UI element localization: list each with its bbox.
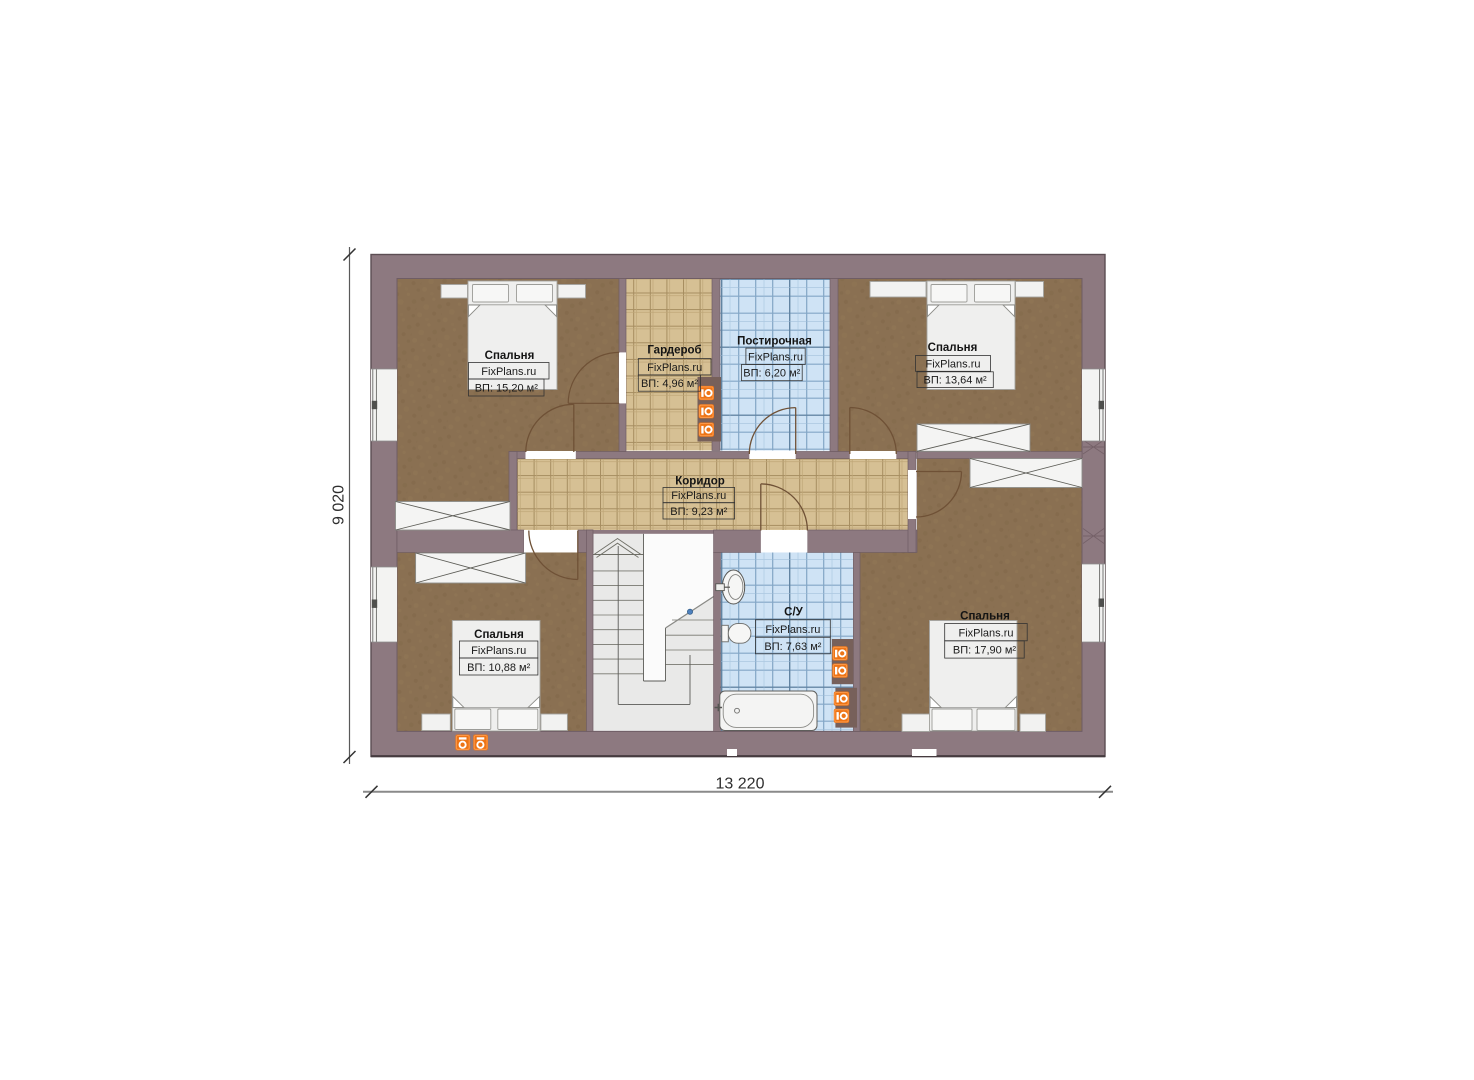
svg-text:С/У: С/У bbox=[784, 607, 804, 619]
svg-text:ВП: 9,23 м²: ВП: 9,23 м² bbox=[670, 506, 727, 518]
svg-text:Коридор: Коридор bbox=[675, 475, 725, 487]
svg-text:9 020: 9 020 bbox=[331, 485, 348, 525]
svg-text:Гардероб: Гардероб bbox=[647, 344, 701, 356]
svg-text:FixPlans.ru: FixPlans.ru bbox=[958, 627, 1013, 639]
svg-text:ВП: 7,63 м²: ВП: 7,63 м² bbox=[764, 641, 821, 653]
svg-text:Постирочная: Постирочная bbox=[737, 335, 812, 347]
svg-text:ВП: 6,20 м²: ВП: 6,20 м² bbox=[743, 368, 800, 380]
svg-text:FixPlans.ru: FixPlans.ru bbox=[471, 645, 526, 657]
svg-text:FixPlans.ru: FixPlans.ru bbox=[748, 351, 803, 363]
svg-text:ВП: 13,64 м²: ВП: 13,64 м² bbox=[924, 375, 988, 387]
svg-text:ВП: 4,96 м²: ВП: 4,96 м² bbox=[641, 378, 698, 390]
svg-text:Спальня: Спальня bbox=[474, 629, 524, 641]
svg-text:FixPlans.ru: FixPlans.ru bbox=[647, 362, 702, 374]
svg-text:Спальня: Спальня bbox=[960, 610, 1010, 622]
svg-text:FixPlans.ru: FixPlans.ru bbox=[765, 624, 820, 636]
svg-text:FixPlans.ru: FixPlans.ru bbox=[671, 490, 726, 502]
svg-text:ВП: 15,20 м²: ВП: 15,20 м² bbox=[475, 383, 539, 395]
svg-text:Спальня: Спальня bbox=[485, 350, 535, 362]
svg-text:13 220: 13 220 bbox=[716, 776, 765, 793]
svg-text:FixPlans.ru: FixPlans.ru bbox=[925, 358, 980, 370]
svg-text:Спальня: Спальня bbox=[928, 342, 978, 354]
svg-text:ВП: 10,88 м²: ВП: 10,88 м² bbox=[467, 662, 531, 674]
svg-text:ВП: 17,90 м²: ВП: 17,90 м² bbox=[953, 645, 1017, 657]
svg-text:FixPlans.ru: FixPlans.ru bbox=[481, 366, 536, 378]
